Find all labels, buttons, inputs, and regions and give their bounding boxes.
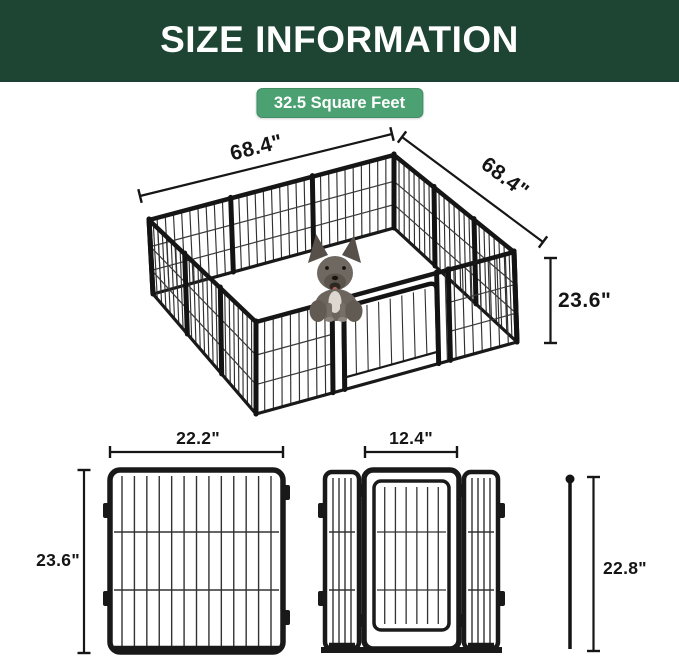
dog-illustration <box>308 234 363 322</box>
page-header: SIZE INFORMATION <box>0 0 679 82</box>
door-panel-diagram <box>318 446 600 651</box>
panel-height-label: 23.6" <box>36 550 80 570</box>
door-width-label: 12.4" <box>389 428 433 448</box>
rod-height-label: 22.8" <box>603 558 647 578</box>
panel-width-label: 22.2" <box>176 428 220 448</box>
single-panel-diagram <box>78 446 291 653</box>
pen-width-label: 68.4" <box>228 130 285 165</box>
page-title: SIZE INFORMATION <box>160 19 519 61</box>
pen-depth-label: 68.4" <box>477 153 533 203</box>
pen-height-label: 23.6" <box>558 289 611 312</box>
size-information-page: SIZE INFORMATION 32.5 Square Feet 68.4 <box>0 0 679 656</box>
size-diagram: 68.4" 68.4" 23.6" 22.2" 23.6" 12.4" 22.8… <box>0 82 679 656</box>
